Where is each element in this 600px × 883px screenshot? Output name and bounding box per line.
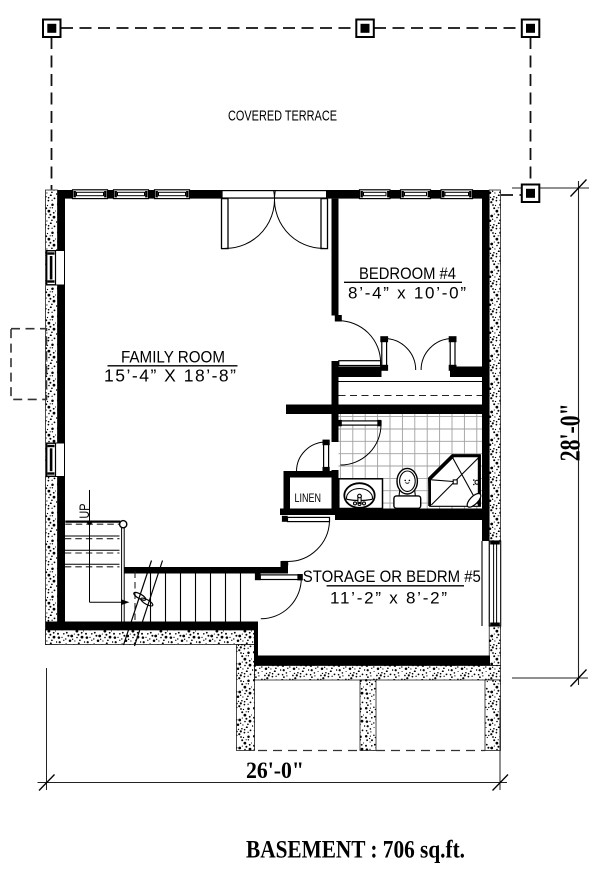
- svg-text:15’-4” X 18’-8”: 15’-4” X 18’-8”: [104, 366, 236, 386]
- svg-text:LINEN: LINEN: [295, 493, 322, 505]
- svg-text:26'-0": 26'-0": [246, 758, 304, 783]
- svg-text:FAMILY ROOM: FAMILY ROOM: [121, 348, 225, 367]
- svg-text:28'-0": 28'-0": [555, 403, 587, 461]
- svg-text:8’-4” x 10’-0”: 8’-4” x 10’-0”: [348, 284, 466, 303]
- svg-text:11’-2” x 8’-2”: 11’-2” x 8’-2”: [330, 589, 447, 608]
- svg-text:COVERED TERRACE: COVERED TERRACE: [228, 109, 337, 125]
- svg-text:BEDROOM #4: BEDROOM #4: [359, 265, 456, 283]
- svg-text:BASEMENT : 706 sq.ft.: BASEMENT : 706 sq.ft.: [246, 836, 465, 863]
- svg-text:STORAGE OR BEDRM #5: STORAGE OR BEDRM #5: [303, 568, 481, 586]
